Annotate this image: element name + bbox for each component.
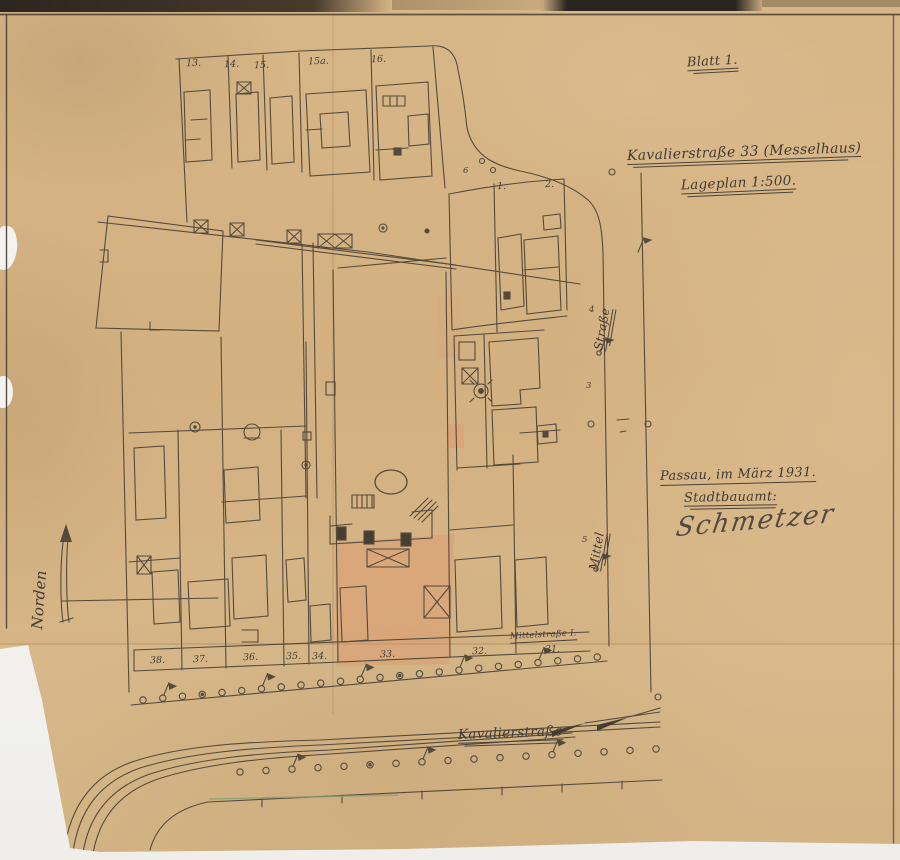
parcel-number: 15a.: [308, 56, 329, 68]
label-place-date: Passau, im März 1931.: [660, 465, 816, 486]
street-tree-symbols-lower: [237, 740, 659, 775]
sheet-border-lines: [0, 15, 900, 844]
label-title: Kavalierstraße 33 (Messelhaus): [627, 140, 862, 168]
parcel-33-highlight: [334, 296, 464, 666]
parcel-number: 31.: [545, 644, 560, 656]
bottom-light-band: [0, 645, 900, 855]
mittelstrasse-lines: [467, 128, 661, 700]
label-scale: Lageplan 1:500.: [681, 172, 797, 197]
parcel-number: 14.: [224, 59, 239, 71]
label-norden: Norden: [28, 570, 50, 630]
parcel-number: 2.: [545, 179, 554, 190]
parcel-number: 34.: [312, 651, 327, 663]
top-parcel-row: [176, 46, 467, 233]
label-mittelstrasse-small: Mittelstraße I.: [510, 628, 577, 643]
top-edge-shadow-left: [0, 0, 392, 12]
parcel-number: 1.: [497, 181, 506, 192]
street-tree-symbols-upper: [140, 648, 601, 704]
top-edge-shadow-corner: [762, 0, 900, 7]
paper: Blatt 1. Kavalierstraße 33 (Messelhaus) …: [0, 0, 900, 860]
mid-diagonal-boundary: [96, 216, 580, 331]
plan-drawing: [0, 0, 900, 860]
label-strasse-vertical: Straße: [591, 307, 616, 352]
parcel-number: 5: [582, 535, 587, 545]
parcel-number: 15.: [254, 60, 269, 72]
parcel-number: 36.: [243, 652, 258, 664]
city-block-core: [121, 243, 560, 692]
kavalierstrasse-tracks: [64, 708, 662, 854]
north-arrow: [60, 524, 218, 622]
parcel-number: 38.: [150, 655, 165, 667]
bottom-parcel-strip: [131, 632, 607, 705]
top-edge-shadow-right: [540, 0, 762, 11]
parcel-number: 13.: [186, 58, 201, 70]
fold-crease-bottom: [0, 643, 900, 645]
parcel-number: 6: [463, 166, 468, 176]
paper-tear-left-upper: [0, 225, 20, 271]
parcel-number: 35.: [286, 651, 301, 663]
courtyard-features: [330, 470, 438, 567]
label-kavalierstrasse: Kavalierstraße: [458, 723, 564, 747]
top-edge-shadow-mid: [392, 0, 542, 10]
parcel-number: 33.: [380, 649, 395, 661]
parcel-number: 32.: [472, 646, 487, 658]
label-mittel-vertical: Mittel: [586, 531, 610, 572]
fold-crease-vertical: [332, 14, 334, 714]
parcel-number: 3: [586, 381, 591, 391]
scanned-plan-sheet: Blatt 1. Kavalierstraße 33 (Messelhaus) …: [0, 0, 900, 860]
parcel-number: 37.: [193, 654, 208, 666]
paper-tear-left-lower: [0, 375, 15, 409]
label-blatt: Blatt 1.: [687, 53, 739, 75]
parcel-number: 4: [589, 305, 594, 315]
parcel-number: 16.: [371, 54, 386, 66]
